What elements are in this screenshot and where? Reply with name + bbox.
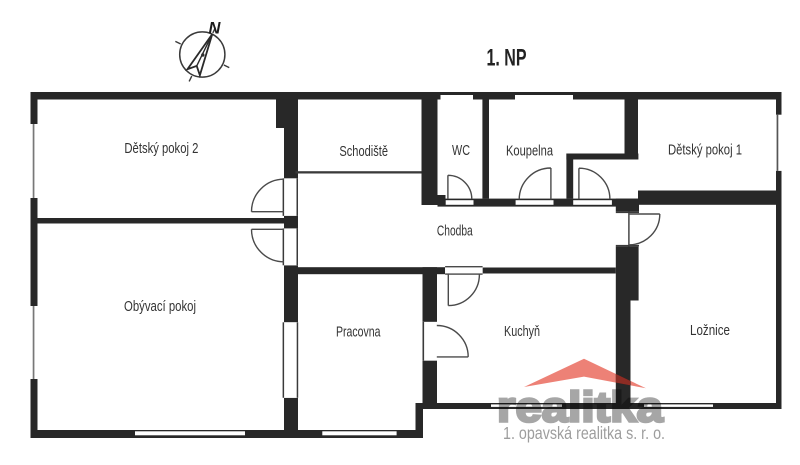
svg-text:Chodba: Chodba bbox=[437, 224, 473, 240]
svg-text:WC: WC bbox=[452, 143, 470, 159]
svg-text:Obývací pokoj: Obývací pokoj bbox=[124, 299, 196, 315]
svg-text:1. opavská realitka s. r. o.: 1. opavská realitka s. r. o. bbox=[503, 423, 665, 443]
svg-text:Koupelna: Koupelna bbox=[506, 144, 554, 160]
svg-text:N: N bbox=[209, 20, 222, 38]
svg-text:Dětský pokoj 2: Dětský pokoj 2 bbox=[124, 141, 198, 157]
svg-text:1. NP: 1. NP bbox=[487, 44, 527, 71]
svg-text:Schodiště: Schodiště bbox=[339, 144, 388, 160]
svg-text:Pracovna: Pracovna bbox=[336, 325, 381, 341]
svg-text:Dětský pokoj 1: Dětský pokoj 1 bbox=[668, 142, 742, 158]
svg-text:Kuchyň: Kuchyň bbox=[504, 324, 540, 340]
svg-text:Ložnice: Ložnice bbox=[690, 323, 730, 339]
